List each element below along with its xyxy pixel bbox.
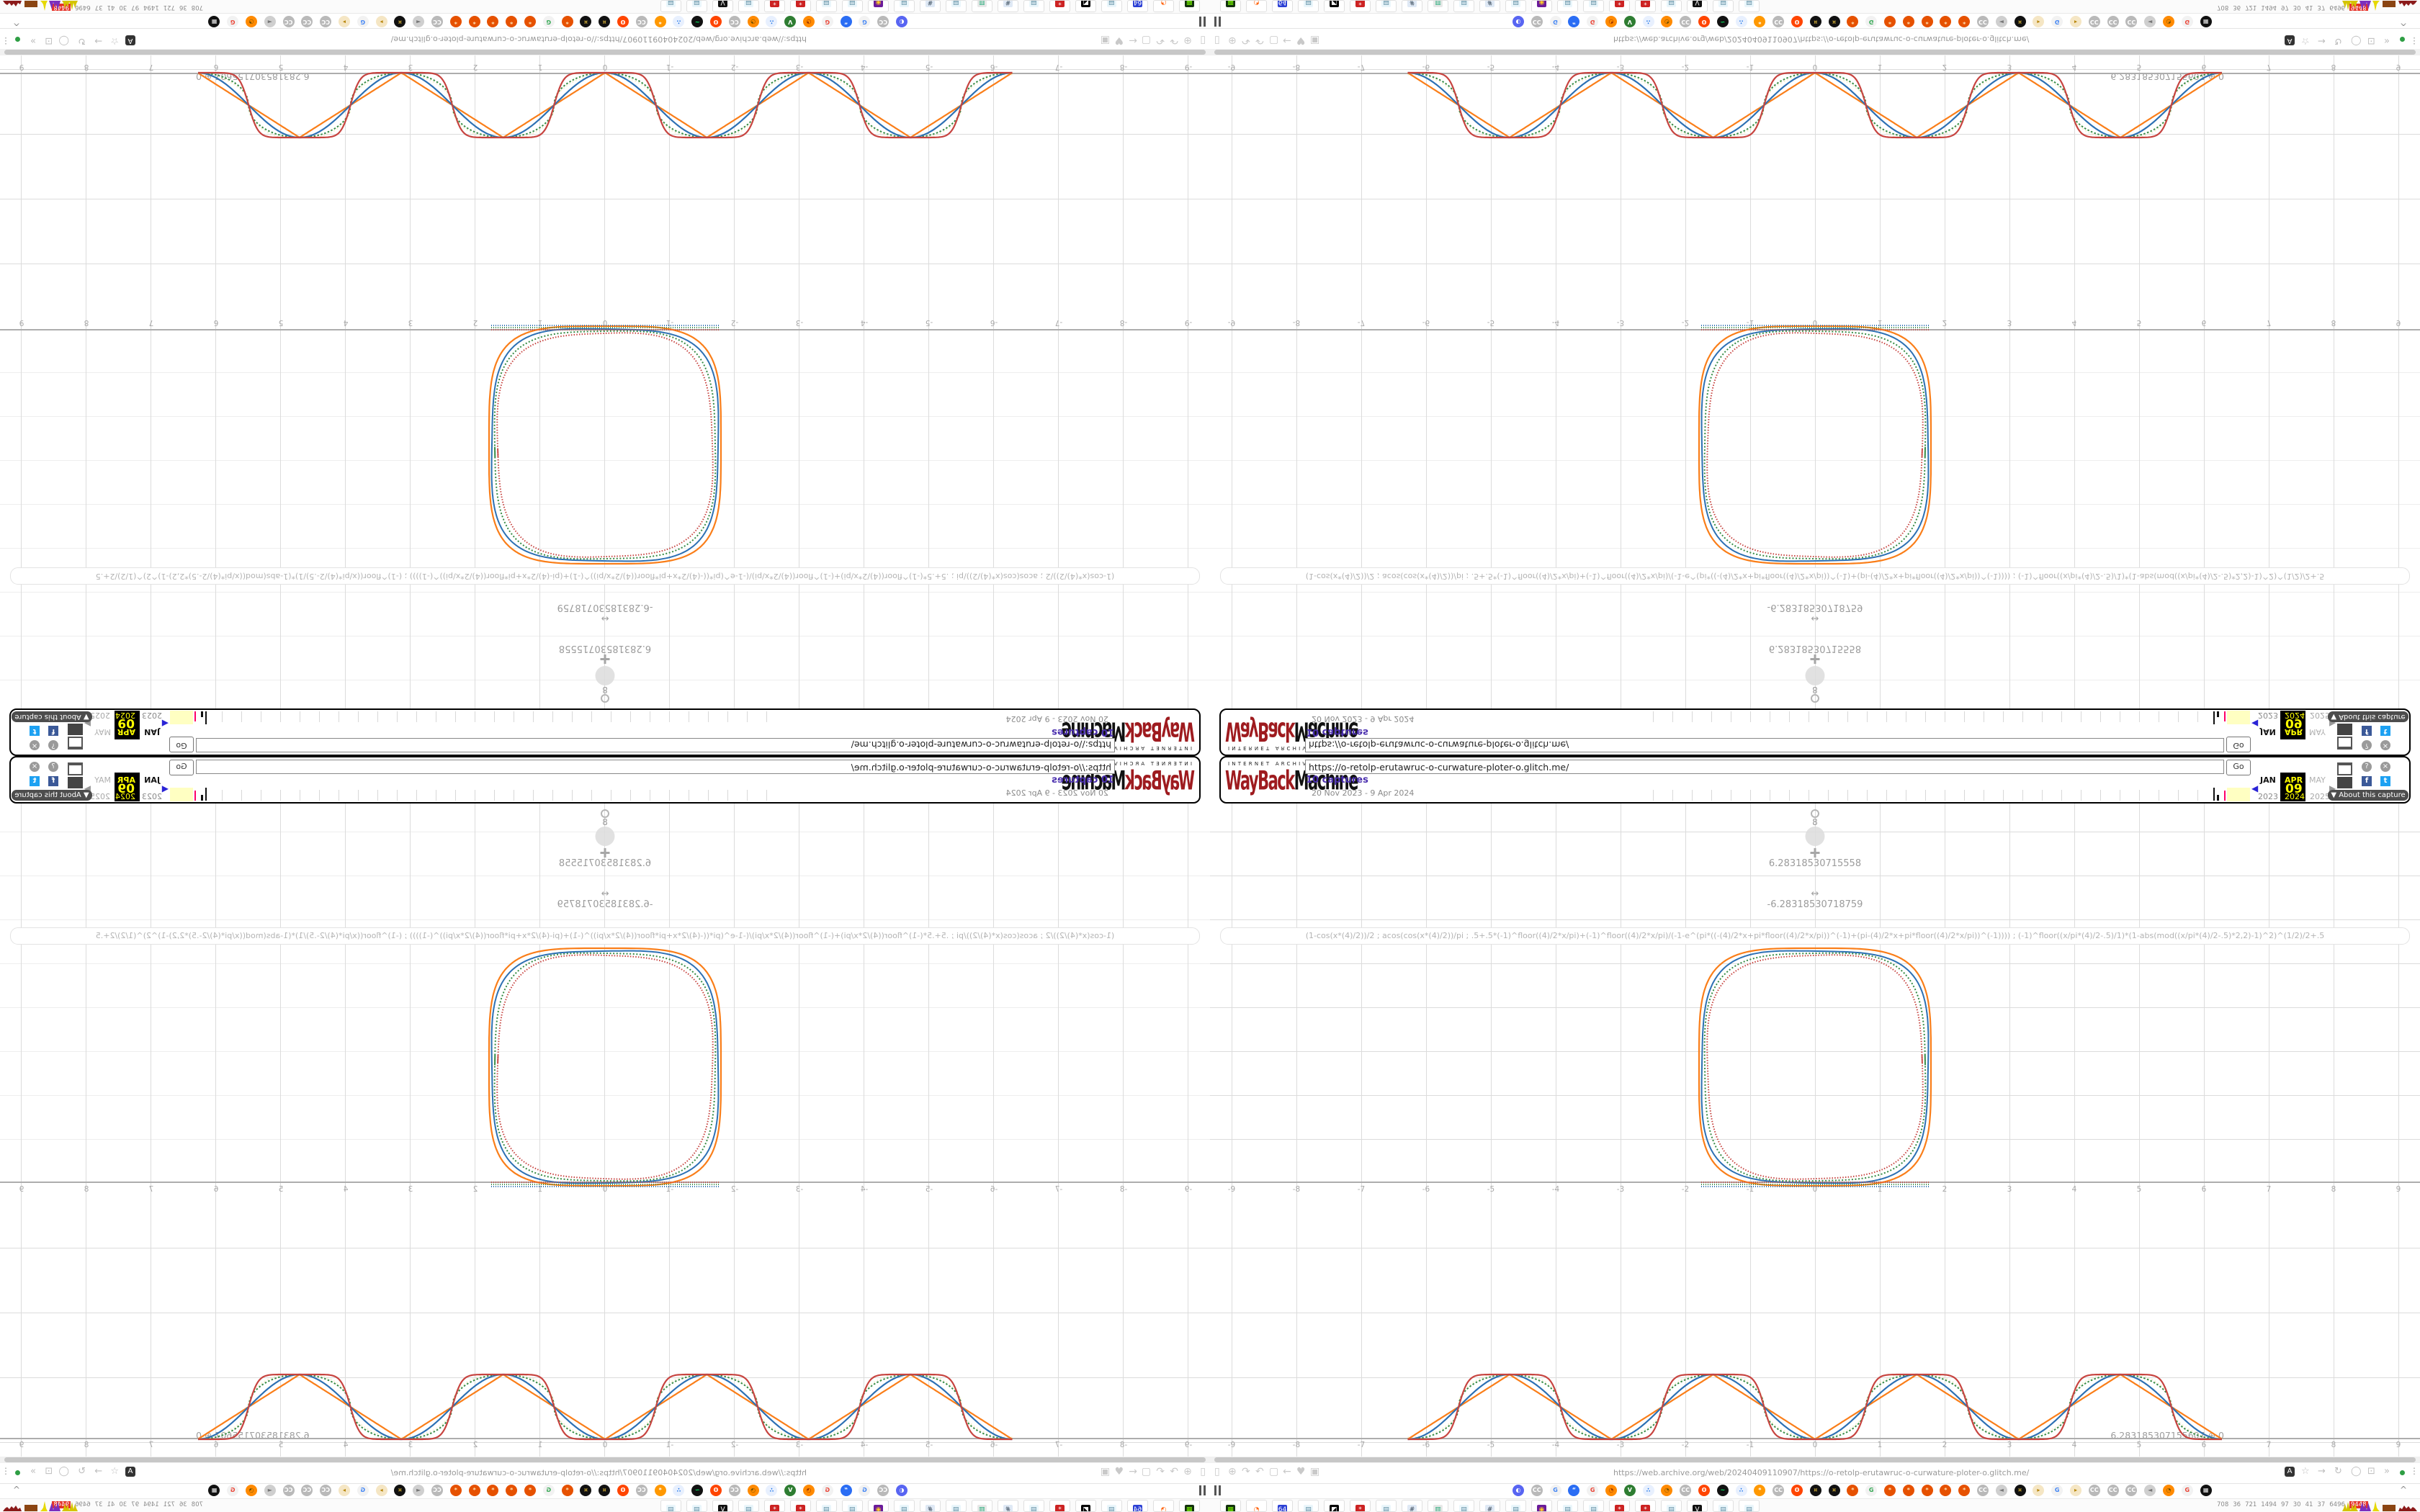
horizontal-handle-icon[interactable]: ↔ [1811, 613, 1819, 624]
bookmark-favicon[interactable]: G [1550, 16, 1561, 27]
bookmark-favicon[interactable]: CC [320, 1485, 331, 1496]
year-prev[interactable]: 2023 [142, 711, 162, 720]
bookmark-favicon[interactable]: ¤ [394, 1485, 405, 1496]
scrollbar-thumb[interactable] [1214, 50, 2416, 55]
bookmark-favicon[interactable]: ◐ [1512, 1485, 1524, 1496]
bookmark-favicon[interactable]: V [784, 16, 796, 27]
tab[interactable]: 64 [1127, 1500, 1148, 1512]
bookmark-favicon[interactable]: ◔ [748, 1485, 759, 1496]
tab[interactable]: ◩ [1075, 0, 1096, 12]
tab[interactable]: ▤ [946, 1500, 967, 1512]
action-icon[interactable]: ⊡ [2367, 1466, 2375, 1477]
prev-month-link[interactable]: JAN [144, 775, 160, 785]
tab[interactable]: ▤ [1298, 0, 1319, 12]
bookmark-favicon[interactable]: * [450, 1485, 462, 1496]
bookmark-favicon[interactable]: * [1847, 16, 1858, 27]
formula-expression-bar[interactable]: (1-cos(x*(4)/2))/2 ; acos(cos(x*(4)/2))/… [1220, 567, 2410, 585]
bookmark-favicon[interactable]: CC [2107, 1485, 2119, 1496]
tab[interactable]: ▤ [1453, 1500, 1474, 1512]
bookmark-favicon[interactable]: ◔ [1661, 1485, 1672, 1496]
bookmark-favicon[interactable]: ◄ [1996, 16, 2007, 27]
tab[interactable]: ◔ [1153, 0, 1174, 12]
tab[interactable]: ▤ [816, 1500, 837, 1512]
prev-capture-arrow[interactable]: ◀ [162, 719, 169, 729]
bookmark-favicon[interactable]: ◔ [1605, 1485, 1617, 1496]
help-icon[interactable]: ? [2362, 762, 2372, 772]
bookmark-favicon[interactable]: * [1958, 1485, 1970, 1496]
bookmark-favicon[interactable]: G [1550, 1485, 1561, 1496]
bookmark-favicon[interactable]: ʘ [1791, 16, 1803, 27]
tab[interactable]: ▥ [972, 0, 992, 12]
nav-icon[interactable]: ▯ [1214, 1466, 1220, 1477]
action-icon[interactable]: ◯ [2351, 1466, 2362, 1477]
tab[interactable]: ▤ [1023, 1500, 1044, 1512]
go-button[interactable]: Go [169, 737, 194, 752]
tab[interactable]: ▤ [1376, 1500, 1397, 1512]
window-icon[interactable] [2337, 762, 2352, 775]
bookmark-favicon[interactable]: ◔ [246, 1485, 257, 1496]
tab[interactable]: * [1350, 1500, 1371, 1512]
action-icon[interactable]: » [2384, 1466, 2390, 1477]
tab[interactable]: ▤ [1713, 0, 1734, 12]
tab[interactable]: ◔ [1153, 1500, 1174, 1512]
tab[interactable]: ▤ [1376, 0, 1397, 12]
bookmark-favicon[interactable]: * [1922, 16, 1933, 27]
nav-icon[interactable]: ⊕ [1228, 1466, 1237, 1477]
horizontal-handle-icon[interactable]: ↔ [601, 613, 609, 624]
bookmark-favicon[interactable]: * [562, 16, 573, 27]
bookmark-favicon[interactable]: ▦ [208, 16, 220, 27]
translate-icon[interactable]: A [125, 35, 135, 45]
bookmark-favicon[interactable]: ◐ [896, 1485, 907, 1496]
nav-icon[interactable]: ♥ [1296, 1466, 1306, 1477]
action-icon[interactable]: ↻ [78, 1466, 86, 1477]
bookmark-favicon[interactable]: ◔ [246, 16, 257, 27]
tab[interactable]: 64 [1272, 0, 1293, 12]
bookmark-favicon[interactable]: ◄ [1996, 1485, 2007, 1496]
nav-icon[interactable]: ▢ [1142, 1466, 1151, 1477]
bookmark-favicon[interactable]: ▦ [2200, 16, 2212, 27]
bookmark-favicon[interactable]: ¤ [1810, 16, 1821, 27]
year-next[interactable]: 2025 [2310, 711, 2330, 720]
prev-month-link[interactable]: JAN [144, 727, 160, 737]
tab[interactable]: ▤ [1505, 0, 1526, 12]
tab[interactable]: ▤ [1101, 1500, 1122, 1512]
bookmark-favicon[interactable]: CC [283, 1485, 295, 1496]
facebook-share-icon[interactable]: f [2362, 726, 2372, 736]
bookmark-favicon[interactable]: ▸ [339, 16, 350, 27]
bookmark-favicon[interactable]: ▦ [208, 1485, 220, 1496]
bookmark-favicon[interactable]: ~ [691, 1485, 703, 1496]
tab[interactable]: * [1049, 0, 1070, 12]
nav-icon[interactable]: ↶ [1255, 1466, 1264, 1477]
bookmark-favicon[interactable]: ʘ [617, 1485, 629, 1496]
action-icon[interactable]: ◯ [58, 1466, 69, 1477]
bookmark-favicon[interactable]: * [562, 1485, 573, 1496]
tab[interactable]: ▤ [1713, 1500, 1734, 1512]
bookmark-favicon[interactable]: ◔ [1661, 16, 1672, 27]
about-this-capture-button[interactable]: ▼ About this capture [12, 711, 92, 722]
prev-capture-arrow[interactable]: ◀ [162, 783, 169, 793]
bookmark-favicon[interactable]: G [357, 16, 369, 27]
action-icon[interactable]: ◯ [58, 35, 69, 46]
captures-link[interactable]: 10 captures [1306, 775, 1368, 786]
action-icon[interactable]: » [30, 1466, 36, 1477]
move-handle-icon[interactable] [601, 654, 610, 664]
action-icon[interactable]: » [30, 35, 36, 46]
bookmark-favicon[interactable]: * [1940, 1485, 1951, 1496]
help-icon[interactable]: ? [48, 762, 58, 772]
window-icon[interactable] [2337, 737, 2352, 750]
slider-knob[interactable] [596, 666, 615, 685]
about-this-capture-button[interactable]: ▼ About this capture [12, 790, 92, 801]
bookmark-favicon[interactable]: ∴ [673, 1485, 684, 1496]
tab[interactable]: V [712, 1500, 733, 1512]
nav-icon[interactable]: ▣ [1310, 35, 1319, 46]
action-icon[interactable]: → [2318, 1466, 2326, 1477]
nav-icon[interactable]: ⊕ [1183, 1466, 1192, 1477]
nav-icon[interactable]: ▣ [1101, 35, 1110, 46]
bookmark-favicon[interactable]: ▸ [2070, 1485, 2081, 1496]
horizontal-handle-icon[interactable]: ↔ [1811, 888, 1819, 899]
bookmark-favicon[interactable]: CC [320, 16, 331, 27]
nav-icon[interactable]: ♥ [1114, 1466, 1124, 1477]
bookmark-favicon[interactable]: CC [2125, 16, 2137, 27]
nav-icon[interactable]: ← [1129, 1466, 1137, 1477]
bookmark-favicon[interactable]: CC [2125, 1485, 2137, 1496]
tab[interactable]: ▦ [1220, 0, 1241, 12]
nav-icon[interactable]: ↷ [1242, 1466, 1250, 1477]
tab[interactable]: ▤ [1739, 1500, 1760, 1512]
bookmark-favicon[interactable]: G [2182, 1485, 2193, 1496]
bookmark-favicon[interactable]: G [1865, 16, 1877, 27]
screenshot-icon[interactable] [2337, 724, 2352, 735]
nav-icon[interactable]: ▢ [1269, 1466, 1278, 1477]
tab[interactable]: ▦ [1220, 1500, 1241, 1512]
bookmark-favicon[interactable]: ▸ [339, 1485, 350, 1496]
bookmark-favicon[interactable]: ◔ [2163, 1485, 2174, 1496]
tab[interactable]: ◩ [1324, 0, 1345, 12]
bookmark-favicon[interactable]: V [1624, 1485, 1636, 1496]
tab[interactable]: # [1479, 1500, 1500, 1512]
bookmark-favicon[interactable]: ◔ [1605, 16, 1617, 27]
bookmark-favicon[interactable]: ◔ [803, 1485, 815, 1496]
bookmark-favicon[interactable]: ¤ [1829, 1485, 1840, 1496]
bookmark-favicon[interactable]: CC [1977, 1485, 1989, 1496]
tab[interactable]: * [1635, 0, 1656, 12]
bookmark-favicon[interactable]: “ [1568, 16, 1579, 27]
tab[interactable]: ◔ [1246, 0, 1267, 12]
bookmark-favicon[interactable]: ◄ [264, 16, 276, 27]
bookmark-favicon[interactable]: ▸ [376, 1485, 387, 1496]
collapse-chevron-icon[interactable]: ^ [13, 17, 20, 27]
tab[interactable]: ◔ [1246, 1500, 1267, 1512]
scrollbar-thumb[interactable] [4, 1457, 1206, 1462]
action-icon[interactable]: ☆ [110, 35, 119, 46]
tab[interactable]: ▤ [1298, 1500, 1319, 1512]
prev-month-link[interactable]: JAN [2260, 727, 2276, 737]
move-handle-icon[interactable] [1811, 654, 1820, 664]
bookmark-favicon[interactable]: ◔ [2163, 16, 2174, 27]
bookmark-favicon[interactable]: ◐ [1512, 16, 1524, 27]
bookmark-favicon[interactable]: CC [301, 16, 313, 27]
bookmark-favicon[interactable]: CC [1680, 16, 1691, 27]
bookmark-favicon[interactable]: ◄ [413, 1485, 424, 1496]
tab[interactable]: ▤ [660, 0, 681, 12]
bookmark-favicon[interactable]: G [1865, 1485, 1877, 1496]
bookmark-favicon[interactable]: ¤ [580, 16, 591, 27]
bookmark-favicon[interactable]: “ [841, 1485, 852, 1496]
action-icon[interactable]: ☆ [2301, 35, 2310, 46]
bookmark-favicon[interactable]: ◐ [896, 16, 907, 27]
bookmark-favicon[interactable]: CC [877, 16, 889, 27]
point-marker-icon[interactable] [1811, 694, 1819, 703]
nav-icon[interactable]: ▣ [1101, 1466, 1110, 1477]
bookmark-favicon[interactable]: G [543, 1485, 555, 1496]
formula-expression-bar[interactable]: (1-cos(x*(4)/2))/2 ; acos(cos(x*(4)/2))/… [10, 567, 1200, 585]
tab[interactable]: ▤ [1023, 0, 1044, 12]
bookmark-favicon[interactable]: ʘ [710, 1485, 722, 1496]
wayback-url-input[interactable] [1305, 760, 2224, 774]
bookmark-favicon[interactable]: ◔ [748, 16, 759, 27]
tab[interactable]: * [790, 0, 811, 12]
captures-link[interactable]: 10 captures [1052, 775, 1114, 786]
bookmark-favicon[interactable]: G [2051, 16, 2063, 27]
tab[interactable]: V [712, 0, 733, 12]
tab[interactable]: ▤ [1661, 0, 1682, 12]
year-prev[interactable]: 2023 [142, 792, 162, 801]
nav-icon[interactable]: ↷ [1242, 35, 1250, 46]
bookmark-favicon[interactable]: * [655, 16, 666, 27]
capture-timeline-sparkline[interactable] [1653, 710, 2215, 724]
bookmark-favicon[interactable]: ʘ [617, 16, 629, 27]
prev-month-link[interactable]: JAN [2260, 775, 2276, 785]
tab[interactable]: ◉ [868, 1500, 889, 1512]
tab[interactable]: * [764, 1500, 785, 1512]
bookmark-favicon[interactable]: ∴ [1643, 16, 1654, 27]
tab[interactable]: ▤ [946, 0, 967, 12]
bookmark-favicon[interactable]: CC [1531, 16, 1543, 27]
bookmark-favicon[interactable]: CC [431, 16, 443, 27]
tab[interactable]: * [764, 0, 785, 12]
tab[interactable]: ▦ [1179, 0, 1200, 12]
next-month-link[interactable]: MAY [2309, 727, 2326, 737]
bookmark-favicon[interactable]: CC [2107, 16, 2119, 27]
bookmark-favicon[interactable]: G [1587, 16, 1598, 27]
bookmark-favicon[interactable]: ▸ [376, 16, 387, 27]
tab[interactable]: ▤ [1101, 0, 1122, 12]
captures-link[interactable]: 10 captures [1052, 726, 1114, 737]
screenshot-icon[interactable] [68, 777, 83, 788]
nav-icon[interactable]: ← [1283, 35, 1291, 46]
tab[interactable]: ▤ [1557, 1500, 1578, 1512]
bookmark-favicon[interactable]: ʘ [710, 16, 722, 27]
window-icon[interactable] [68, 762, 83, 775]
nav-icon[interactable]: ↷ [1170, 1466, 1178, 1477]
bookmark-favicon[interactable]: ∴ [1736, 1485, 1747, 1496]
bookmark-favicon[interactable]: ∴ [766, 1485, 777, 1496]
nav-icon[interactable]: ♥ [1296, 35, 1306, 46]
tab[interactable]: ▤ [1583, 0, 1604, 12]
tab[interactable]: ▤ [842, 0, 863, 12]
year-prev[interactable]: 2023 [2258, 711, 2278, 720]
bookmark-favicon[interactable]: * [1884, 1485, 1896, 1496]
bookmark-favicon[interactable]: G [543, 16, 555, 27]
nav-icon[interactable]: ⊕ [1228, 35, 1237, 46]
bookmark-favicon[interactable]: ◄ [2144, 16, 2156, 27]
next-month-link[interactable]: MAY [94, 775, 111, 785]
bookmark-favicon[interactable]: CC [2089, 1485, 2100, 1496]
year-prev[interactable]: 2023 [2258, 792, 2278, 801]
bookmark-favicon[interactable]: “ [1568, 1485, 1579, 1496]
bookmark-favicon[interactable]: ~ [1717, 16, 1729, 27]
nav-icon[interactable]: ⊕ [1183, 35, 1192, 46]
tab[interactable]: ◉ [1531, 0, 1552, 12]
bookmark-favicon[interactable]: * [655, 1485, 666, 1496]
tab[interactable]: * [790, 1500, 811, 1512]
bookmark-favicon[interactable]: CC [636, 1485, 647, 1496]
bookmark-favicon[interactable]: CC [301, 1485, 313, 1496]
tab[interactable]: 64 [1272, 1500, 1293, 1512]
action-icon[interactable]: ↻ [2334, 1466, 2342, 1477]
tab[interactable]: * [1049, 1500, 1070, 1512]
tab[interactable]: V [1687, 1500, 1708, 1512]
nav-icon[interactable]: ▢ [1142, 35, 1151, 46]
horizontal-handle-icon[interactable]: ↔ [601, 888, 609, 899]
tab[interactable]: ◉ [1531, 1500, 1552, 1512]
bookmark-favicon[interactable]: ◔ [803, 16, 815, 27]
bookmark-favicon[interactable]: * [524, 1485, 536, 1496]
about-this-capture-button[interactable]: ▼ About this capture [2328, 790, 2408, 801]
bookmark-favicon[interactable]: ʘ [1698, 16, 1710, 27]
bookmark-favicon[interactable]: * [506, 1485, 517, 1496]
close-icon[interactable]: × [30, 762, 40, 772]
bookmark-favicon[interactable]: V [1624, 16, 1636, 27]
bookmark-favicon[interactable]: ▸ [2070, 16, 2081, 27]
go-button[interactable]: Go [2226, 760, 2251, 775]
bookmark-favicon[interactable]: CC [877, 1485, 889, 1496]
bookmark-favicon[interactable]: V [784, 1485, 796, 1496]
bookmark-favicon[interactable]: * [1940, 16, 1951, 27]
tab[interactable]: ◩ [1324, 1500, 1345, 1512]
nav-icon[interactable]: ↶ [1255, 35, 1264, 46]
bookmark-favicon[interactable]: ∴ [1643, 1485, 1654, 1496]
nav-icon[interactable]: ← [1283, 1466, 1291, 1477]
tab[interactable]: ▤ [686, 1500, 707, 1512]
screenshot-icon[interactable] [68, 724, 83, 735]
collapse-chevron-icon[interactable]: ^ [13, 1485, 20, 1495]
bookmark-favicon[interactable]: ◄ [413, 16, 424, 27]
bookmark-favicon[interactable]: ∴ [673, 16, 684, 27]
translate-icon[interactable]: A [2285, 35, 2295, 45]
point-marker-icon[interactable] [601, 694, 609, 703]
collapse-chevron-icon[interactable]: ^ [2400, 1485, 2407, 1495]
tab[interactable]: ▥ [1428, 0, 1448, 12]
action-icon[interactable]: ☆ [110, 1466, 119, 1477]
scrollbar-thumb[interactable] [4, 50, 1206, 55]
close-icon[interactable]: × [2380, 762, 2390, 772]
bookmark-favicon[interactable]: * [524, 16, 536, 27]
action-icon[interactable]: ◯ [2351, 35, 2362, 46]
bookmark-favicon[interactable]: CC [729, 16, 740, 27]
bookmark-favicon[interactable]: * [1754, 16, 1765, 27]
tab[interactable]: # [1402, 0, 1422, 12]
bookmark-favicon[interactable]: G [227, 16, 238, 27]
translate-icon[interactable]: A [125, 1467, 135, 1477]
menu-icon[interactable]: ⋮ [1, 36, 10, 46]
nav-icon[interactable]: ↷ [1170, 35, 1178, 46]
action-icon[interactable]: → [94, 35, 102, 46]
year-next[interactable]: 2025 [90, 792, 110, 801]
tab[interactable]: # [920, 1500, 941, 1512]
tab[interactable]: ▤ [1557, 0, 1578, 12]
tab[interactable]: # [920, 0, 941, 12]
collapse-chevron-icon[interactable]: ^ [2400, 17, 2407, 27]
action-icon[interactable]: ↻ [78, 35, 86, 46]
bookmark-favicon[interactable]: ▸ [2033, 1485, 2044, 1496]
bookmark-favicon[interactable]: G [2051, 1485, 2063, 1496]
tab[interactable]: 64 [1127, 0, 1148, 12]
action-icon[interactable]: ⊡ [45, 1466, 53, 1477]
address-bar-url[interactable]: https://web.archive.org/web/202404091109… [403, 1468, 807, 1477]
bookmark-favicon[interactable]: * [1903, 1485, 1914, 1496]
capture-timeline-sparkline[interactable] [1653, 788, 2215, 802]
tab[interactable]: ▤ [686, 0, 707, 12]
tab[interactable]: ▤ [1505, 1500, 1526, 1512]
help-icon[interactable]: ? [48, 740, 58, 750]
action-icon[interactable]: → [2318, 35, 2326, 46]
nav-icon[interactable]: ▯ [1214, 35, 1220, 46]
next-month-link[interactable]: MAY [2309, 775, 2326, 785]
captures-link[interactable]: 10 captures [1306, 726, 1368, 737]
bookmark-favicon[interactable]: ▸ [2033, 16, 2044, 27]
bookmark-favicon[interactable]: ~ [691, 16, 703, 27]
bookmark-favicon[interactable]: ¤ [599, 1485, 610, 1496]
menu-icon[interactable]: ⋮ [2410, 1466, 2419, 1476]
nav-icon[interactable]: ♥ [1114, 35, 1124, 46]
bookmark-favicon[interactable]: ¤ [580, 1485, 591, 1496]
about-this-capture-button[interactable]: ▼ About this capture [2328, 711, 2408, 722]
bookmark-favicon[interactable]: ◄ [2144, 1485, 2156, 1496]
bookmark-favicon[interactable]: ¤ [1810, 1485, 1821, 1496]
bookmark-favicon[interactable]: CC [1773, 16, 1784, 27]
nav-icon[interactable]: ▯ [1200, 1466, 1206, 1477]
tab[interactable]: ◉ [868, 0, 889, 12]
tab[interactable]: ▤ [894, 1500, 915, 1512]
facebook-share-icon[interactable]: f [48, 776, 58, 786]
action-icon[interactable]: » [2384, 35, 2390, 46]
window-icon[interactable] [68, 737, 83, 750]
facebook-share-icon[interactable]: f [48, 726, 58, 736]
screenshot-icon[interactable] [2337, 777, 2352, 788]
scrollbar-thumb[interactable] [1214, 1457, 2416, 1462]
tab[interactable]: * [1350, 0, 1371, 12]
bookmark-favicon[interactable]: G [357, 1485, 369, 1496]
tab[interactable]: ▥ [1428, 1500, 1448, 1512]
next-month-link[interactable]: MAY [94, 727, 111, 737]
bookmark-favicon[interactable]: ◄ [264, 1485, 276, 1496]
go-button[interactable]: Go [169, 760, 194, 775]
prev-capture-arrow[interactable]: ◀ [2251, 783, 2258, 793]
bookmark-favicon[interactable]: “ [841, 16, 852, 27]
address-bar-url[interactable]: https://web.archive.org/web/202404091109… [1613, 35, 2017, 44]
bookmark-favicon[interactable]: * [487, 1485, 498, 1496]
twitter-share-icon[interactable]: t [30, 776, 40, 786]
tab[interactable]: * [1609, 0, 1630, 12]
action-icon[interactable]: → [94, 1466, 102, 1477]
bookmark-favicon[interactable]: ¤ [394, 16, 405, 27]
tab[interactable]: ◩ [1075, 1500, 1096, 1512]
